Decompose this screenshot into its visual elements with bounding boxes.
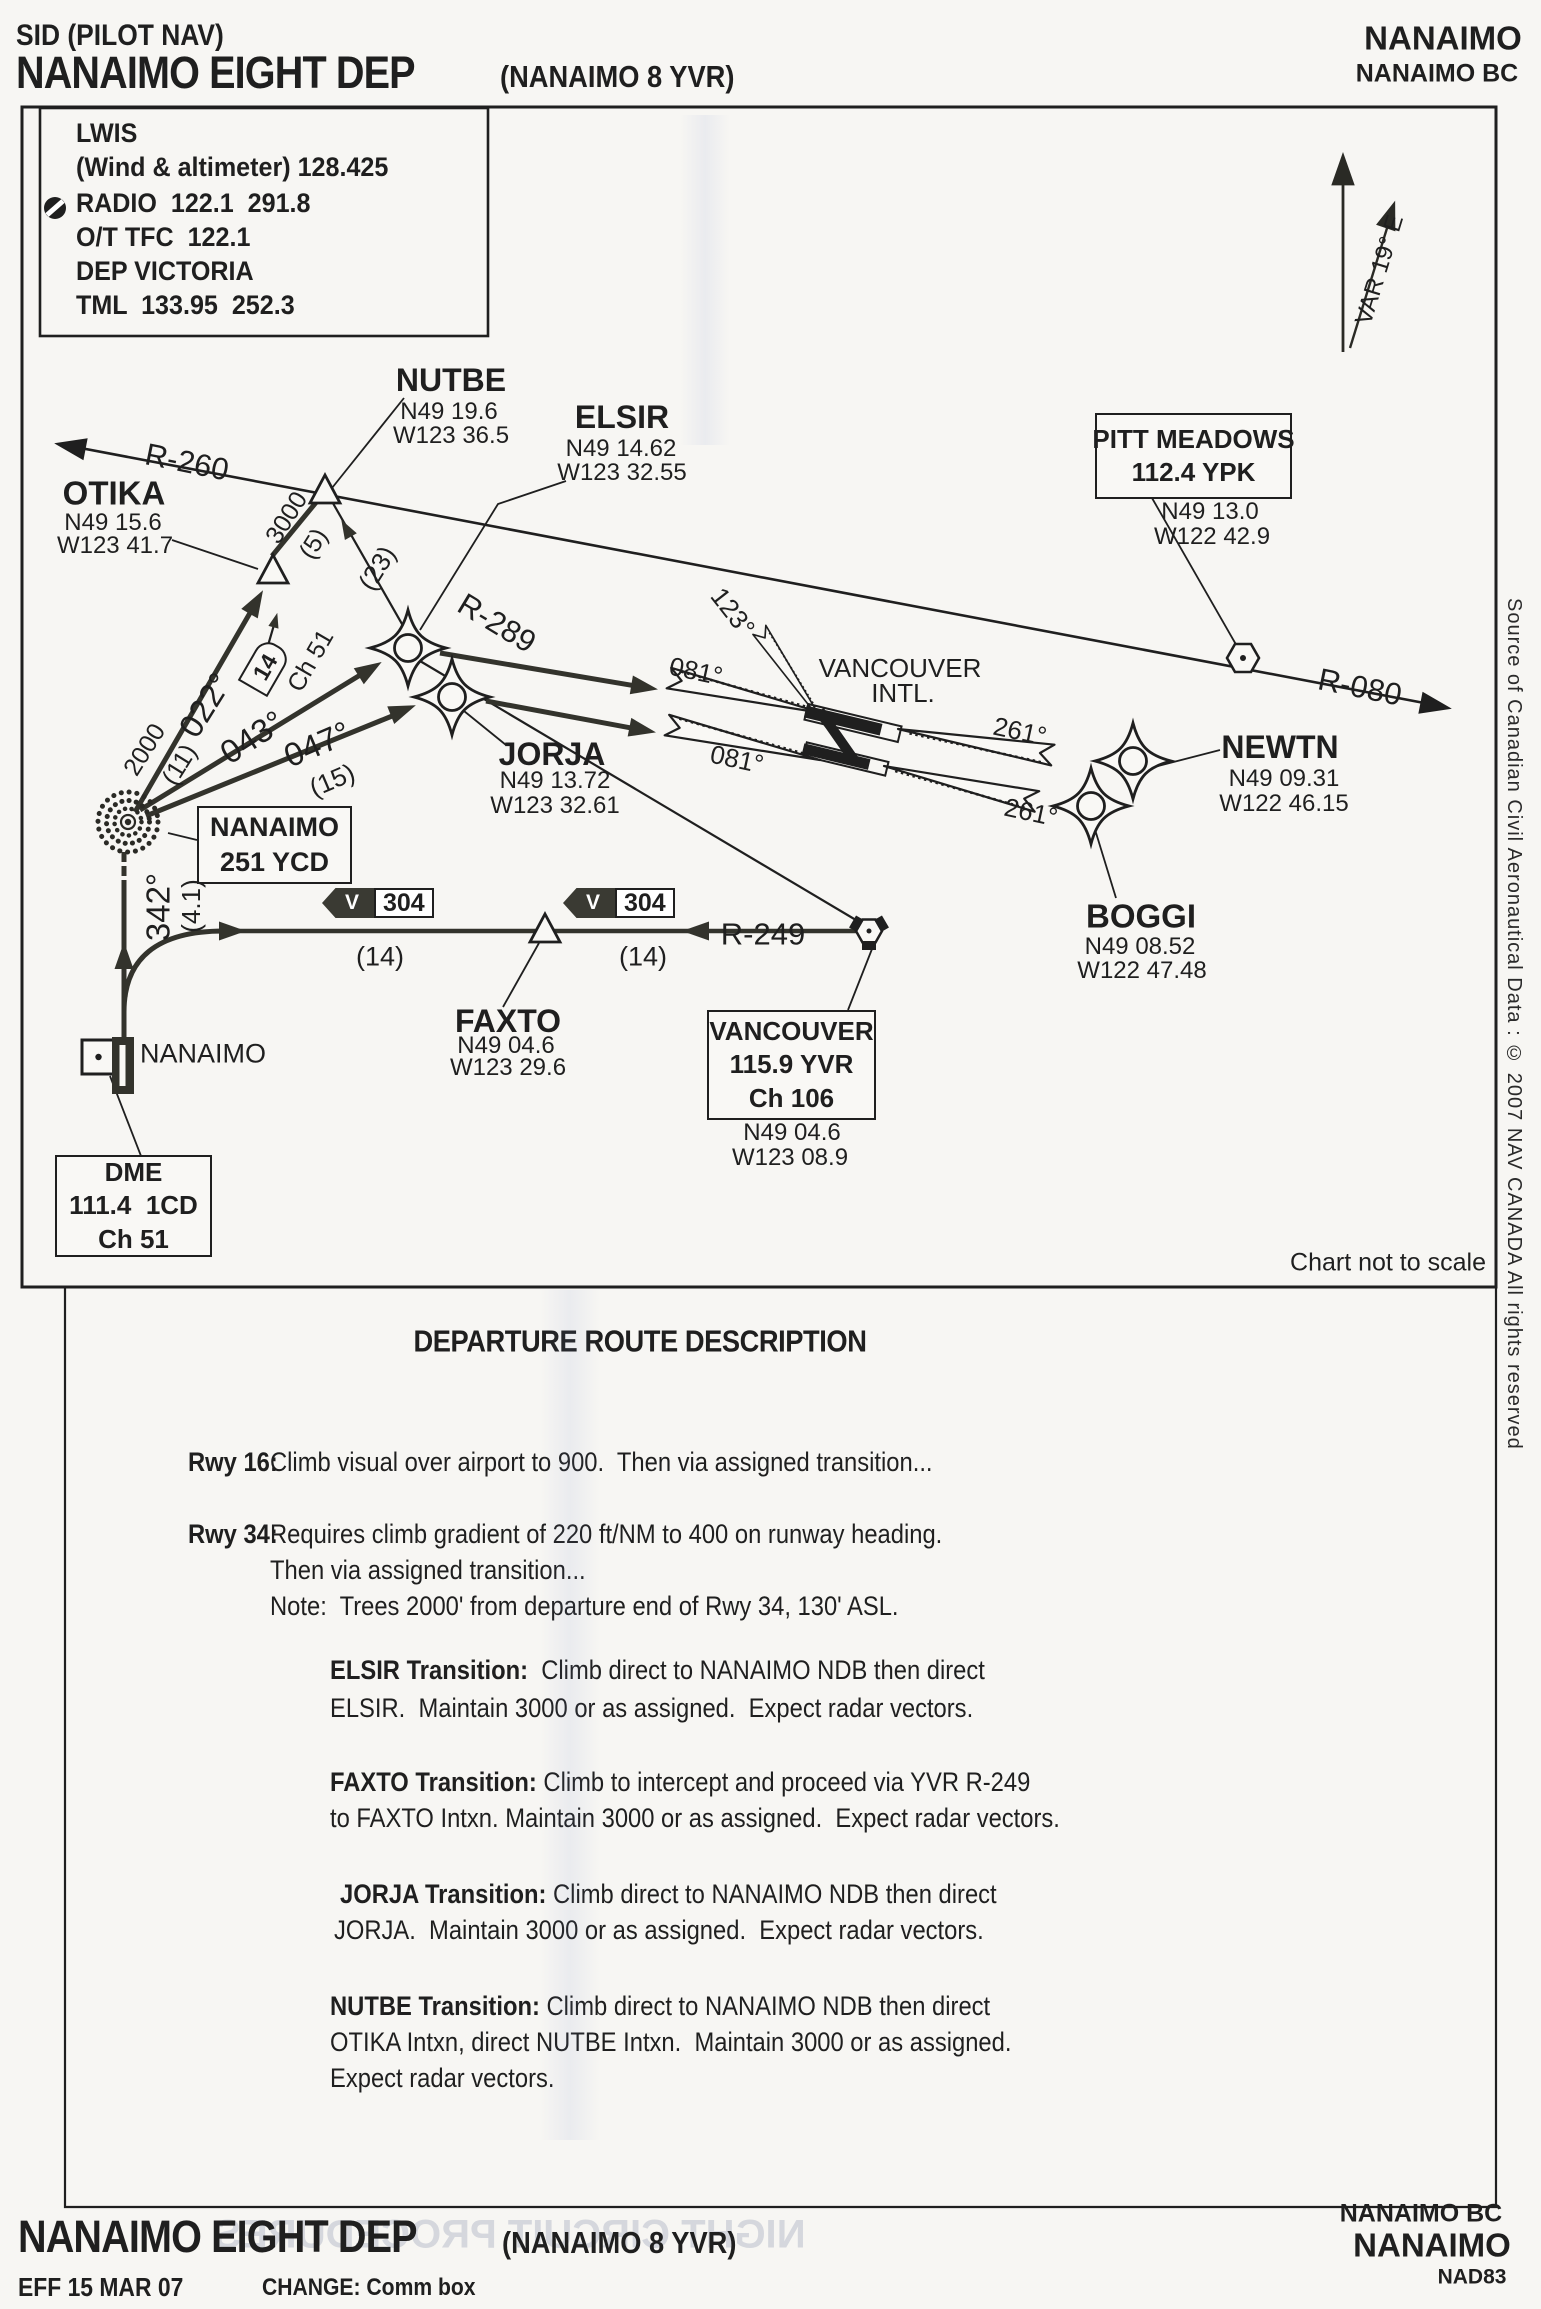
elsir-transition-line-1: ELSIR Transition: Climb direct to NANAIM… <box>330 1654 985 1686</box>
nanaimo-ndb-box: NANAIMO 251 YCD <box>197 806 352 884</box>
nanaimo-ndb-freq: 251 YCD <box>220 845 329 880</box>
footer-airport-name: NANAIMO <box>1353 2229 1511 2262</box>
radial-r249-label: R-249 <box>721 919 805 950</box>
airway-number: 304 <box>615 888 675 918</box>
airway-v-icon: V <box>563 888 615 918</box>
boggi-star-icon <box>1053 768 1129 844</box>
rwy34-text-1: Requires climb gradient of 220 ft/NM to … <box>270 1518 942 1550</box>
pitt-meadows-name: PITT MEADOWS <box>1092 423 1294 456</box>
nanaimo-dme-channel: Ch 51 <box>98 1223 169 1256</box>
elsir-transition-line-2: ELSIR. Maintain 3000 or as assigned. Exp… <box>330 1692 973 1724</box>
fix-elsir-lat: N49 14.62 <box>566 437 677 461</box>
fix-boggi-name: BOGGI <box>1086 900 1196 933</box>
fix-newtn-lon: W122 46.15 <box>1219 792 1348 816</box>
jorja-transition-line-1: JORJA Transition: Climb direct to NANAIM… <box>340 1878 997 1910</box>
fix-otika-name: OTIKA <box>63 477 166 510</box>
fix-nutbe-name: NUTBE <box>396 364 506 396</box>
not-to-scale-note: Chart not to scale <box>1290 1251 1486 1276</box>
airport-icon <box>82 1037 134 1094</box>
comm-line-radio: RADIO 122.1 291.8 <box>76 188 310 219</box>
ndb-symbol <box>98 792 158 852</box>
jorja-transition-line-2: JORJA. Maintain 3000 or as assigned. Exp… <box>334 1914 984 1946</box>
faxto-triangle-icon <box>530 914 560 942</box>
fix-jorja-lat: N49 13.72 <box>500 769 611 793</box>
vancouver-vor-name: VANCOUVER <box>709 1015 873 1048</box>
fix-jorja-lon: W123 32.61 <box>490 794 619 818</box>
vancouver-vor-channel: Ch 106 <box>749 1082 834 1115</box>
pitt-meadows-lon: W122 42.9 <box>1154 525 1270 549</box>
jorja-transition-label: JORJA Transition: <box>340 1879 546 1909</box>
comm-line-ot-tfc: O/T TFC 122.1 <box>76 222 250 253</box>
page-title-suffix: (NANAIMO 8 YVR) <box>500 58 734 95</box>
rwy16-label: Rwy 16: <box>188 1446 278 1478</box>
distance-4p1-label: (4.1) <box>178 879 204 932</box>
airway-v-icon: V <box>322 888 374 918</box>
header-airport-location: NANAIMO BC <box>1356 62 1519 87</box>
fix-jorja-name: JORJA <box>499 738 606 770</box>
airway-v304-badge-east: V 304 <box>563 888 675 918</box>
fix-boggi-lat: N49 08.52 <box>1085 935 1196 959</box>
comm-line-tml: TML 133.95 252.3 <box>76 290 295 321</box>
vancouver-vor-box: VANCOUVER 115.9 YVR Ch 106 <box>707 1010 876 1120</box>
fix-nutbe-lat: N49 19.6 <box>400 400 497 424</box>
rwy34-text-3: Note: Trees 2000' from departure end of … <box>270 1590 899 1622</box>
copyright-sidebar: Source of Canadian Civil Aeronautical Da… <box>1502 598 1525 1450</box>
distance-14-west-label: (14) <box>356 944 404 971</box>
airway-v304-badge-west: V 304 <box>322 888 434 918</box>
comm-line-dep-victoria: DEP VICTORIA <box>76 256 254 287</box>
vancouver-vor-lon: W123 08.9 <box>732 1146 848 1170</box>
faxto-transition-line-1: FAXTO Transition: Climb to intercept and… <box>330 1766 1030 1798</box>
nutbe-triangle-icon <box>310 475 340 503</box>
nutbe-transition-line-3: Expect radar vectors. <box>330 2062 554 2094</box>
distance-14-east-label: (14) <box>619 944 667 971</box>
pitt-meadows-box: PITT MEADOWS 112.4 YPK <box>1095 413 1292 499</box>
page-title: NANAIMO EIGHT DEP <box>16 46 415 100</box>
track-342-label: 342° <box>142 873 175 941</box>
fix-newtn-name: NEWTN <box>1221 731 1338 763</box>
nutbe-transition-line-2: OTIKA Intxn, direct NUTBE Intxn. Maintai… <box>330 2026 1011 2058</box>
newtn-star-icon <box>1095 723 1171 799</box>
nanaimo-dme-name: DME <box>105 1156 163 1189</box>
sid-chart-page: SID (PILOT NAV) NANAIMO EIGHT DEP (NANAI… <box>0 0 1541 2309</box>
pitt-meadows-lat: N49 13.0 <box>1161 500 1258 524</box>
vancouver-vor-freq: 115.9 YVR <box>730 1048 854 1081</box>
fix-elsir-name: ELSIR <box>575 401 669 433</box>
fix-faxto-lon: W123 29.6 <box>450 1056 566 1080</box>
footer-effective-date: EFF 15 MAR 07 <box>18 2272 183 2303</box>
pitt-meadows-freq: 112.4 YPK <box>1132 456 1256 489</box>
nanaimo-ndb-name: NANAIMO <box>210 810 339 845</box>
fix-newtn-lat: N49 09.31 <box>1229 767 1340 791</box>
header-airport-name: NANAIMO <box>1364 22 1522 55</box>
fix-otika-lon: W123 41.7 <box>57 534 173 558</box>
nutbe-transition-line-1: NUTBE Transition: Climb direct to NANAIM… <box>330 1990 990 2022</box>
fix-elsir-lon: W123 32.55 <box>557 461 686 485</box>
fix-boggi-lon: W122 47.48 <box>1077 959 1206 983</box>
nanaimo-dme-freq: 111.4 1CD <box>69 1189 198 1222</box>
nanaimo-airport-label: NANAIMO <box>140 1041 266 1068</box>
description-heading: DEPARTURE ROUTE DESCRIPTION <box>414 1326 867 1357</box>
footer-title: NANAIMO EIGHT DEP <box>18 2210 417 2264</box>
comm-line-wind-altimeter: (Wind & altimeter) 128.425 <box>76 152 388 183</box>
footer-change-note: CHANGE: Comm box <box>262 2274 476 2303</box>
faxto-transition-label: FAXTO Transition: <box>330 1767 537 1797</box>
comm-line-lwis: LWIS <box>76 118 137 149</box>
elsir-transition-label: ELSIR Transition: <box>330 1655 528 1685</box>
footer-title-suffix: (NANAIMO 8 YVR) <box>502 2224 736 2261</box>
vancouver-vor-lat: N49 04.6 <box>743 1121 840 1145</box>
footer-datum: NAD83 <box>1438 2267 1507 2288</box>
nutbe-transition-label: NUTBE Transition: <box>330 1991 540 2021</box>
faxto-transition-line-2: to FAXTO Intxn. Maintain 3000 or as assi… <box>330 1802 1060 1834</box>
fix-nutbe-lon: W123 36.5 <box>393 424 509 448</box>
footer-airport-location: NANAIMO BC <box>1340 2202 1503 2227</box>
vor-hexagon-icon <box>1227 644 1259 672</box>
rco-circle-icon <box>44 197 66 219</box>
rwy16-text: Climb visual over airport to 900. Then v… <box>270 1446 933 1478</box>
rwy34-label: Rwy 34: <box>188 1518 278 1550</box>
runway-diagram <box>802 704 902 776</box>
vancouver-intl-label-2: INTL. <box>871 680 935 706</box>
elsir-star-icon <box>370 610 446 686</box>
rwy34-text-2: Then via assigned transition... <box>270 1554 586 1586</box>
airway-number: 304 <box>374 888 434 918</box>
nanaimo-dme-box: DME 111.4 1CD Ch 51 <box>55 1155 212 1257</box>
thin-route-lines <box>262 498 866 926</box>
otika-triangle-icon <box>258 555 288 583</box>
description-border <box>65 1287 1496 2207</box>
